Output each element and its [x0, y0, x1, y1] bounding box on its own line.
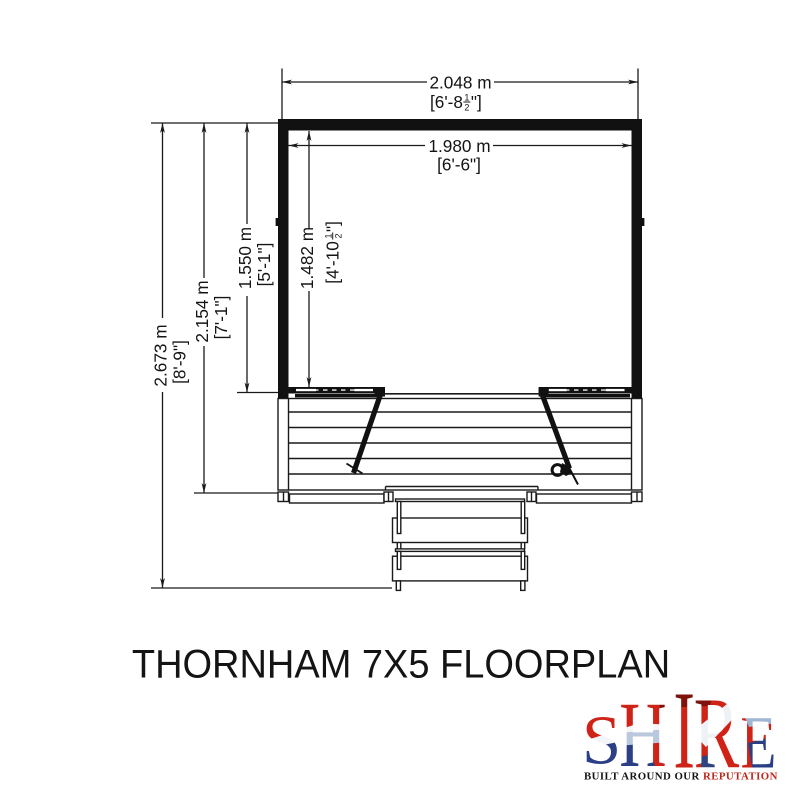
svg-text:[6'-6"]: [6'-6"] — [437, 155, 481, 175]
svg-text:1.980 m: 1.980 m — [428, 136, 490, 156]
svg-text:1: 1 — [464, 92, 469, 102]
svg-text:2.154 m: 2.154 m — [192, 280, 212, 342]
svg-text:[7'-1"]: [7'-1"] — [211, 296, 231, 340]
svg-text:2.673 m: 2.673 m — [150, 324, 170, 386]
svg-text:BUILT AROUND OUR REPUTATION: BUILT AROUND OUR REPUTATION — [584, 771, 778, 783]
svg-text:2: 2 — [464, 103, 469, 113]
svg-text:"]: "] — [471, 92, 482, 112]
svg-text:1.550 m: 1.550 m — [235, 227, 255, 289]
svg-text:[6'-8: [6'-8 — [430, 92, 463, 112]
svg-text:2: 2 — [333, 233, 343, 238]
svg-text:1.482 m: 1.482 m — [297, 227, 317, 289]
svg-text:[8'-9"]: [8'-9"] — [170, 340, 190, 384]
svg-text:2.048 m: 2.048 m — [429, 72, 491, 92]
svg-text:1: 1 — [324, 233, 334, 238]
svg-text:THORNHAM 7X5 FLOORPLAN: THORNHAM 7X5 FLOORPLAN — [132, 643, 670, 687]
svg-text:[5'-1"]: [5'-1"] — [254, 243, 274, 287]
svg-text:"]: "] — [323, 221, 343, 232]
svg-text:[4'-10: [4'-10 — [323, 241, 343, 283]
